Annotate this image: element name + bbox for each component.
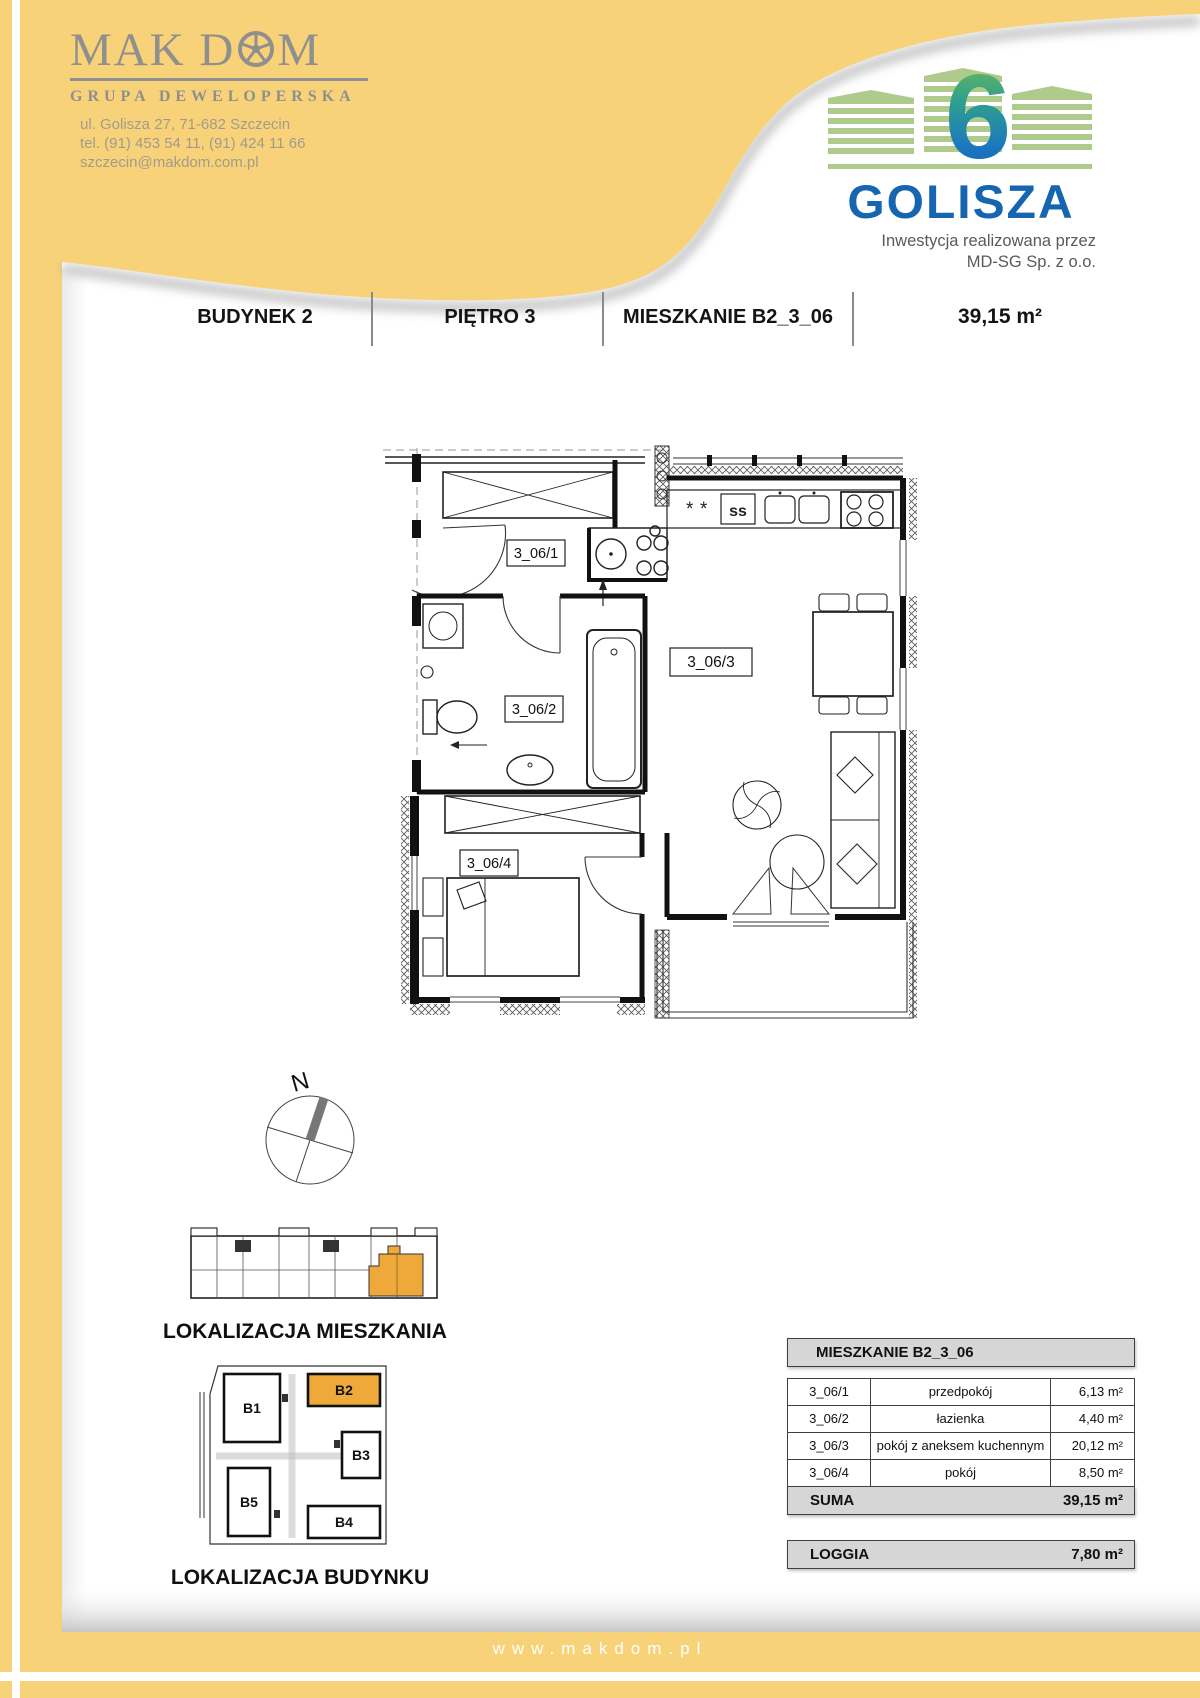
- room-label-3: 3_06/3: [687, 654, 734, 671]
- header-separator: [371, 292, 373, 346]
- footer-url: www.makdom.pl: [0, 1639, 1200, 1659]
- header-building: BUDYNEK 2: [145, 303, 365, 331]
- table-row: 3_06/1 przedpokój 6,13 m²: [788, 1379, 1134, 1406]
- building-location-caption: LOKALIZACJA BUDYNKU: [155, 1566, 445, 1590]
- room-label-4: 3_06/4: [467, 856, 511, 872]
- row-area: 6,13 m²: [1051, 1379, 1134, 1405]
- building-label-b4: B4: [335, 1514, 353, 1530]
- golisza-logo: 6 GOLISZA Inwestycja realizowana przez M…: [826, 42, 1096, 273]
- makdom-name-prefix: MAK D: [70, 24, 235, 76]
- row-name: pokój z aneksem kuchennym: [871, 1433, 1051, 1459]
- golisza-caption-line-2: MD-SG Sp. z o.o.: [826, 252, 1096, 273]
- building-location-map: B1 B2 B3 B4 B5: [190, 1360, 408, 1556]
- row-name: łazienka: [871, 1406, 1051, 1432]
- table-row: 3_06/2 łazienka 4,40 m²: [788, 1406, 1134, 1433]
- makdom-tagline: GRUPA DEWELOPERSKA: [70, 88, 380, 106]
- makdom-address: ul. Golisza 27, 71-682 Szczecin tel. (91…: [80, 115, 380, 172]
- row-area: 8,50 m²: [1051, 1460, 1134, 1487]
- golisza-name: GOLISZA: [823, 178, 1098, 226]
- table-row: 3_06/4 pokój 8,50 m²: [788, 1460, 1134, 1487]
- svg-text:*: *: [700, 499, 708, 520]
- room-labels: 3_06/1 3_06/2 3_06/3 3_06/4: [460, 540, 752, 876]
- row-name: pokój: [871, 1460, 1051, 1487]
- area-table: 3_06/1 przedpokój 6,13 m² 3_06/2 łazienk…: [787, 1378, 1135, 1488]
- bathroom-walls: [417, 596, 645, 792]
- living-walls: [667, 833, 903, 926]
- row-code: 3_06/4: [788, 1460, 871, 1487]
- golisza-number: 6: [945, 50, 1012, 172]
- bathroom-door: [503, 596, 560, 653]
- golisza-caption-line-1: Inwestycja realizowana przez: [826, 231, 1096, 252]
- corridor-wardrobe: [445, 796, 640, 833]
- svg-text:*: *: [686, 499, 694, 520]
- makdom-name-suffix: M: [277, 24, 321, 76]
- address-line-1: ul. Golisza 27, 71-682 Szczecin: [80, 115, 380, 134]
- suma-label: SUMA: [788, 1487, 1063, 1514]
- bedroom-door: [585, 857, 642, 914]
- makdom-wheel-icon: [236, 27, 276, 79]
- entry-door: [412, 525, 506, 597]
- suma-row: SUMA 39,15 m²: [787, 1486, 1135, 1515]
- apartment-floor-plan: * * ss: [355, 400, 935, 1045]
- room-label-1: 3_06/1: [514, 546, 558, 562]
- makdom-logo: MAK DM GRUPA DEWELOPERSKA ul. Golisza 27…: [70, 24, 380, 172]
- header-area: 39,15 m²: [890, 303, 1110, 331]
- address-line-2: tel. (91) 453 54 11, (91) 424 11 66: [80, 134, 380, 153]
- makdom-wordmark: MAK DM: [70, 24, 380, 76]
- table-row: 3_06/3 pokój z aneksem kuchennym 20,12 m…: [788, 1433, 1134, 1460]
- bedroom-walls: [401, 796, 645, 1015]
- row-name: przedpokój: [871, 1379, 1051, 1405]
- row-area: 4,40 m²: [1051, 1406, 1134, 1432]
- loggia-value: 7,80 m²: [1071, 1541, 1134, 1568]
- row-code: 3_06/3: [788, 1433, 871, 1459]
- decor-circles: [733, 781, 824, 889]
- room-label-2: 3_06/2: [512, 702, 556, 718]
- golisza-caption: Inwestycja realizowana przez MD-SG Sp. z…: [826, 231, 1096, 273]
- flyer-page: MAK DM GRUPA DEWELOPERSKA ul. Golisza 27…: [0, 0, 1200, 1698]
- loggia: [655, 922, 913, 1018]
- loggia-label: LOGGIA: [788, 1541, 1071, 1568]
- building-label-b1: B1: [243, 1400, 261, 1416]
- address-line-3: szczecin@makdom.com.pl: [80, 153, 380, 172]
- building-label-b5: B5: [240, 1494, 258, 1510]
- apartment-location-map: [183, 1206, 449, 1310]
- north-label: N: [288, 1068, 312, 1098]
- table-title: MIESZKANIE B2_3_06: [787, 1338, 1135, 1367]
- kitchen-counter: * * ss: [667, 490, 903, 528]
- apartment-location-caption: LOKALIZACJA MIESZKANIA: [160, 1320, 450, 1344]
- suma-value: 39,15 m²: [1063, 1487, 1134, 1514]
- building-label-b3: B3: [352, 1447, 370, 1463]
- golisza-buildings-icon: 6: [826, 42, 1096, 172]
- header-separator: [602, 292, 604, 346]
- bed: [423, 878, 579, 976]
- makdom-rule: [70, 78, 368, 81]
- header-floor: PIĘTRO 3: [380, 303, 600, 331]
- hall-wardrobe: [443, 472, 613, 518]
- header-apartment: MIESZKANIE B2_3_06: [608, 303, 848, 331]
- row-code: 3_06/2: [788, 1406, 871, 1432]
- compass-icon: N: [250, 1068, 370, 1188]
- sofa: [831, 732, 895, 908]
- dining-table: [813, 594, 893, 714]
- header-separator: [852, 292, 854, 346]
- row-code: 3_06/1: [788, 1379, 871, 1405]
- row-area: 20,12 m²: [1051, 1433, 1134, 1459]
- loggia-row: LOGGIA 7,80 m²: [787, 1540, 1135, 1569]
- right-exterior-wall: [900, 478, 917, 1018]
- building-label-b2: B2: [335, 1382, 353, 1398]
- svg-text:ss: ss: [729, 503, 747, 520]
